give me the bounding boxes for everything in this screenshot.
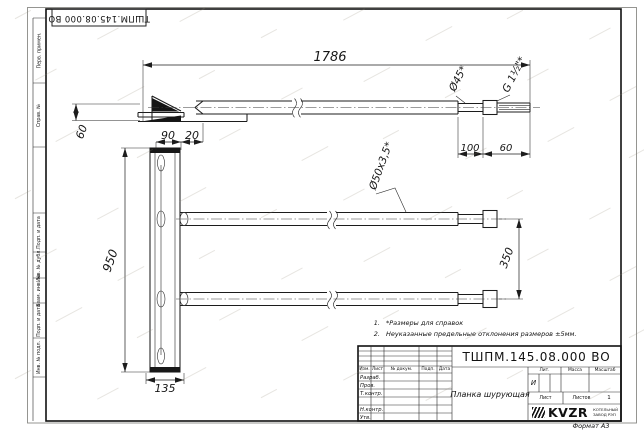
dim-plate-bottom-width: 135 [155,382,176,395]
middle-tube-lower [180,290,497,309]
label-tube-section: Ø50х3,5* [367,141,396,193]
middle-tube-upper [180,210,497,229]
drawing-canvas: 1786 60 90 20 950 135 350 100 60 Ø50х3,5… [0,0,644,430]
dim-plate-offset: 20 [185,129,199,142]
dim-blade-height: 60 [73,123,90,141]
stoker-plate [150,148,180,372]
dim-plate-width: 90 [161,129,175,142]
dim-tube-spacing: 350 [497,246,516,270]
label-thread-size: G 1½"* [500,55,528,95]
dim-end-thread: 60 [500,143,513,154]
dim-plate-height: 950 [100,247,121,274]
label-end-diameter: Ø45* [446,64,469,94]
dim-end-step: 100 [460,143,479,154]
drawing-sheet: { "doc_number": "ТШПМ.145.08.000 ВО", "f… [0,0,644,430]
centerlines [148,108,540,300]
dim-length-total: 1786 [313,50,346,65]
title-block-grid [358,346,621,421]
top-tube [195,97,530,117]
blade-assembly [138,96,247,122]
